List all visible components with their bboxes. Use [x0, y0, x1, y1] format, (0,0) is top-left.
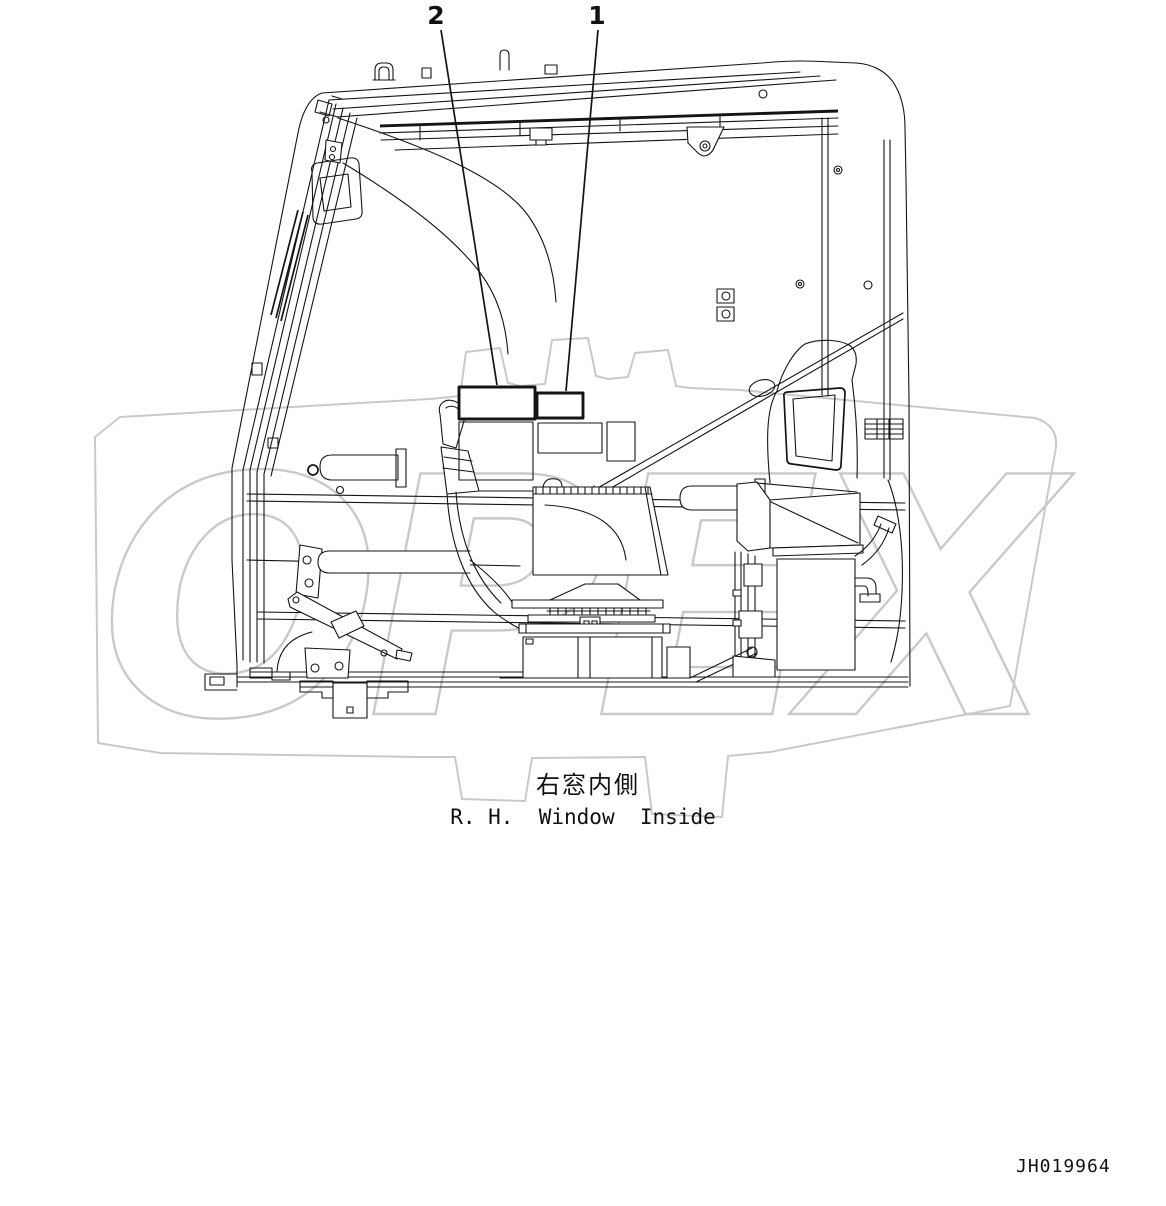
roof-clip-bracket	[530, 128, 552, 145]
caption-english: R. H. Window Inside	[450, 805, 716, 829]
cab-line-drawing: OPEX	[0, 0, 1166, 1206]
valve-block-1	[744, 564, 762, 586]
interior-panel-curves	[338, 118, 556, 354]
roof-bolt-1	[759, 90, 767, 98]
pillar-clip-1	[252, 363, 262, 375]
roof-bolt-2-inner	[837, 169, 840, 172]
door-hinge-upper	[717, 289, 734, 303]
base-side-box	[667, 647, 690, 678]
wall-bolt-1-inner	[799, 283, 802, 286]
roof-bolt-2	[834, 166, 842, 174]
door-hinge-lower	[717, 307, 734, 321]
decal-plate-1	[537, 393, 583, 418]
roof-rail-bold	[380, 111, 838, 126]
antenna-rod	[500, 50, 509, 70]
callouts: 2 1	[427, 1, 605, 391]
callout-1-leader	[566, 30, 598, 391]
wall-bolt-2	[864, 281, 872, 289]
callout-2-label: 2	[427, 1, 444, 30]
wiper-blade	[271, 210, 308, 321]
roof-fixture-small	[422, 65, 557, 78]
lifting-eye-icon	[373, 63, 395, 80]
roof-inner-lines	[329, 72, 838, 150]
heater-box	[777, 559, 855, 670]
diagram-page: OPEX	[0, 0, 1166, 1206]
seat-base-box	[523, 637, 662, 678]
decal-plate-2	[459, 387, 535, 419]
rh-tray-box	[770, 493, 860, 548]
drawing-number: JH019964	[1016, 1156, 1111, 1177]
wall-bolt-1	[796, 280, 804, 288]
grab-tube-lower-left	[318, 551, 470, 573]
valve-block-2	[739, 611, 762, 638]
caption-japanese: 右窓内側	[536, 771, 640, 799]
pedal-pivot-plate	[305, 648, 350, 678]
left-wall-bracket	[296, 545, 322, 598]
suspension-plate-low	[519, 624, 670, 633]
callout-1-label: 1	[588, 1, 605, 30]
grab-tube-upper-left	[320, 455, 398, 480]
watermark: OPEX	[95, 338, 1074, 817]
rh-tray-side	[737, 482, 770, 551]
suspension-plate-top	[512, 600, 663, 608]
